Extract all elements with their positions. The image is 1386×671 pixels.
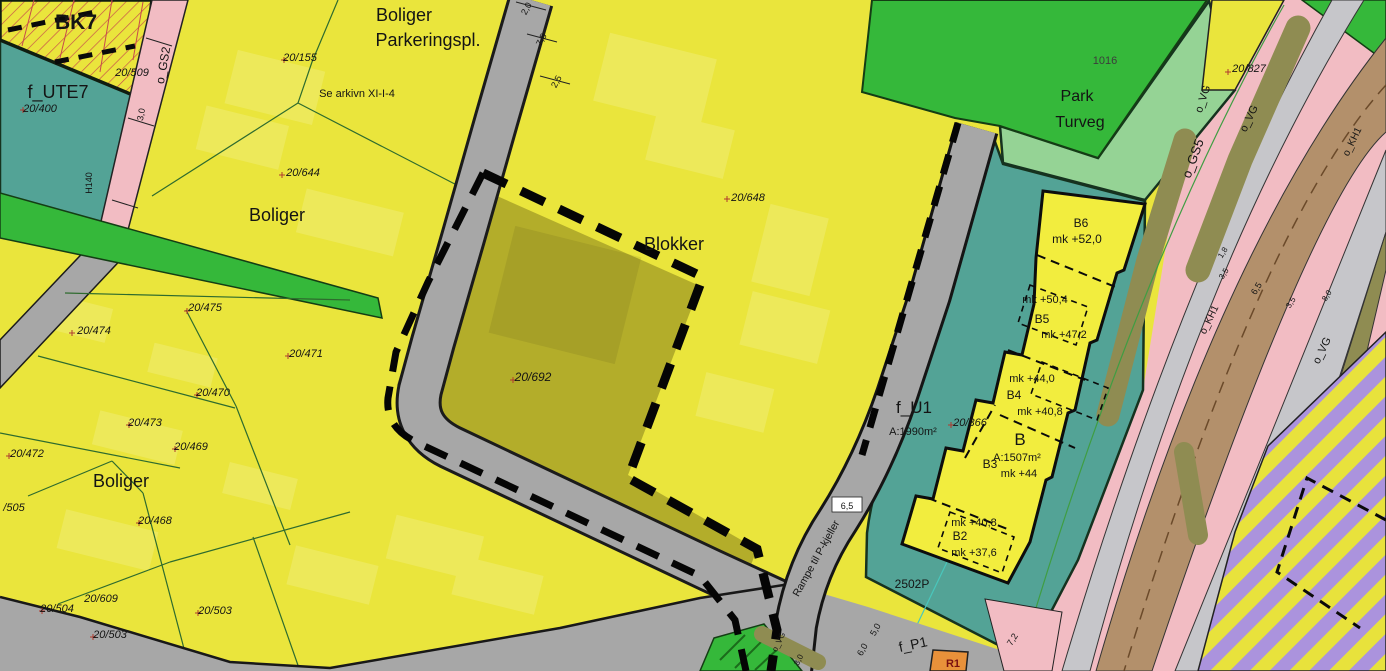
label-1016: 1016 bbox=[1093, 55, 1117, 67]
label-f-ute7: f_UTE7 bbox=[27, 82, 88, 103]
parcel-20-400: 20/400 bbox=[22, 103, 58, 115]
mk-b6: mk +52,0 bbox=[1052, 232, 1102, 246]
label-b: B bbox=[1014, 430, 1025, 449]
parcel-20-503-b: 20/503 bbox=[197, 605, 233, 617]
parcel-20-644: 20/644 bbox=[285, 167, 320, 179]
label-turveg: Turveg bbox=[1055, 114, 1104, 131]
label-boliger-top: Boliger bbox=[376, 5, 432, 25]
parcel-20-504: 20/504 bbox=[39, 603, 74, 615]
parcel-20-648: 20/648 bbox=[730, 192, 766, 204]
area-b: A:1507m² bbox=[993, 452, 1041, 464]
parcel-20-472: 20/472 bbox=[9, 448, 44, 460]
parcel-20-470: 20/470 bbox=[195, 387, 231, 399]
dim-3-0-gs2: 3,0 bbox=[135, 107, 147, 121]
parcel-20-366: 20/366 bbox=[952, 417, 988, 429]
label-b2: B2 bbox=[953, 529, 968, 543]
parcel-20-474: 20/474 bbox=[76, 325, 111, 337]
parcel-20-509: 20/509 bbox=[114, 67, 149, 79]
parcel-505: /505 bbox=[2, 502, 25, 514]
label-b5: B5 bbox=[1035, 312, 1050, 326]
note-arkiv: Se arkivn XI-I-4 bbox=[319, 88, 395, 100]
zoning-map-viewport[interactable]: BK7f_UTE7BoligerParkeringspl.BoligerBlok… bbox=[0, 0, 1386, 671]
label-park: Park bbox=[1061, 88, 1095, 105]
mk-b2-lower: mk +37,6 bbox=[951, 547, 997, 559]
parcel-20-468: 20/468 bbox=[137, 515, 173, 527]
label-b6: B6 bbox=[1074, 216, 1089, 230]
parcel-20-155: 20/155 bbox=[282, 52, 318, 64]
label-boliger-mid: Boliger bbox=[249, 205, 305, 225]
parcel-20-609: 20/609 bbox=[83, 593, 118, 605]
mk-b4-lower: mk +40,8 bbox=[1017, 406, 1063, 418]
label-r1: R1 bbox=[946, 658, 960, 670]
parcel-20-503-a: 20/503 bbox=[92, 629, 128, 641]
dim-6-5-ramp: 6,5 bbox=[841, 501, 854, 511]
parcel-20-692: 20/692 bbox=[514, 370, 552, 384]
parcel-20-473: 20/473 bbox=[127, 417, 163, 429]
parcel-20-827: 20/827 bbox=[1231, 63, 1267, 75]
vegetation-o-vg-small bbox=[1184, 452, 1198, 535]
mk-b: mk +44 bbox=[1001, 468, 1037, 480]
label-bk7: BK7 bbox=[55, 11, 97, 34]
label-parkeringspl: Parkeringspl. bbox=[375, 30, 480, 50]
mk-b2-upper: mk +40,8 bbox=[951, 517, 997, 529]
parcel-20-471: 20/471 bbox=[288, 348, 323, 360]
label-f-u1: f_U1 bbox=[896, 398, 932, 417]
zoning-map-canvas[interactable]: BK7f_UTE7BoligerParkeringspl.BoligerBlok… bbox=[0, 0, 1386, 671]
mk-b4-upper: mk +44,0 bbox=[1009, 373, 1055, 385]
label-boliger-bottom: Boliger bbox=[93, 471, 149, 491]
area-f-u1: A:1990m² bbox=[889, 426, 937, 438]
label-b4: B4 bbox=[1007, 388, 1022, 402]
label-blokker: Blokker bbox=[644, 234, 704, 254]
parcel-20-475: 20/475 bbox=[187, 302, 223, 314]
label-2502p: 2502P bbox=[895, 577, 930, 591]
parcel-20-469: 20/469 bbox=[173, 441, 208, 453]
label-h140: H140 bbox=[84, 172, 94, 194]
mk-b5-lower: mk +47,2 bbox=[1041, 329, 1087, 341]
mk-b5-upper: mk +50,4 bbox=[1022, 294, 1068, 306]
